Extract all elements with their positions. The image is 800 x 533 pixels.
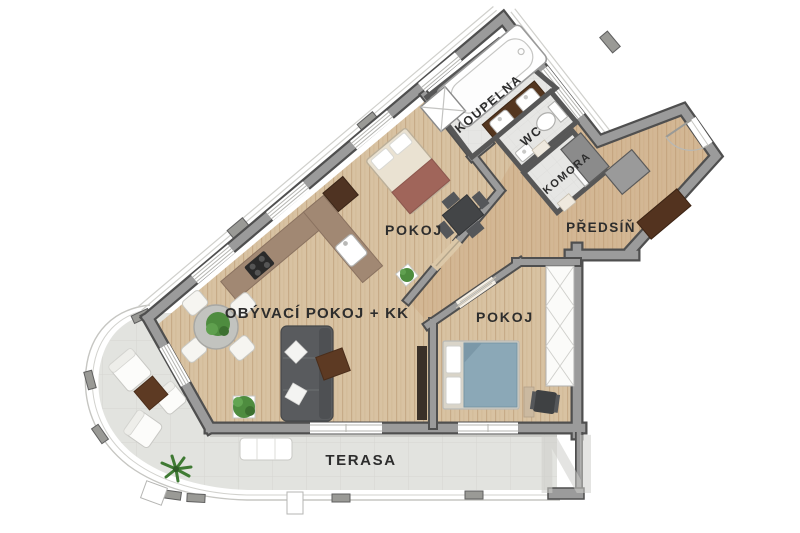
railing-post xyxy=(465,491,483,499)
railing-post xyxy=(92,424,109,443)
floorplan-canvas: KOUPELNA WC KOMORA PŘEDSÍŇ POKOJ OBÝVACÍ… xyxy=(0,0,800,533)
label-obyvaci-pokoj: OBÝVACÍ POKOJ + KK xyxy=(225,304,409,322)
label-terasa: TERASA xyxy=(325,452,396,469)
watermark-letter: N xyxy=(536,417,597,511)
railing-post xyxy=(332,494,350,502)
bed-blue-icon xyxy=(443,341,519,409)
garden-bench-icon xyxy=(240,438,292,460)
facade-pilaster xyxy=(600,31,621,53)
tv-board-icon xyxy=(417,346,427,420)
terrace-gate xyxy=(287,492,303,514)
potted-plant-icon xyxy=(233,396,255,418)
built-in-wardrobe-icon xyxy=(546,266,574,386)
label-predsin: PŘEDSÍŇ xyxy=(566,220,636,235)
railing-post xyxy=(187,494,205,503)
label-pokoj-2: POKOJ xyxy=(476,309,534,325)
label-pokoj-1: POKOJ xyxy=(385,222,443,238)
floorplan-page: KOUPELNA WC KOMORA PŘEDSÍŇ POKOJ OBÝVACÍ… xyxy=(0,0,800,533)
